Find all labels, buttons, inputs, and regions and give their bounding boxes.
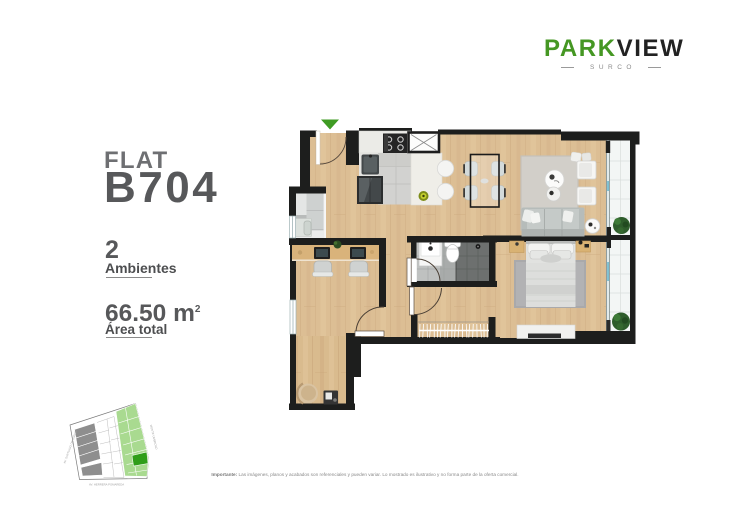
svg-text:AV. HERRERA POMAREDA: AV. HERRERA POMAREDA [89, 483, 124, 487]
svg-text:MONTE UMBROSO: MONTE UMBROSO [149, 424, 159, 450]
